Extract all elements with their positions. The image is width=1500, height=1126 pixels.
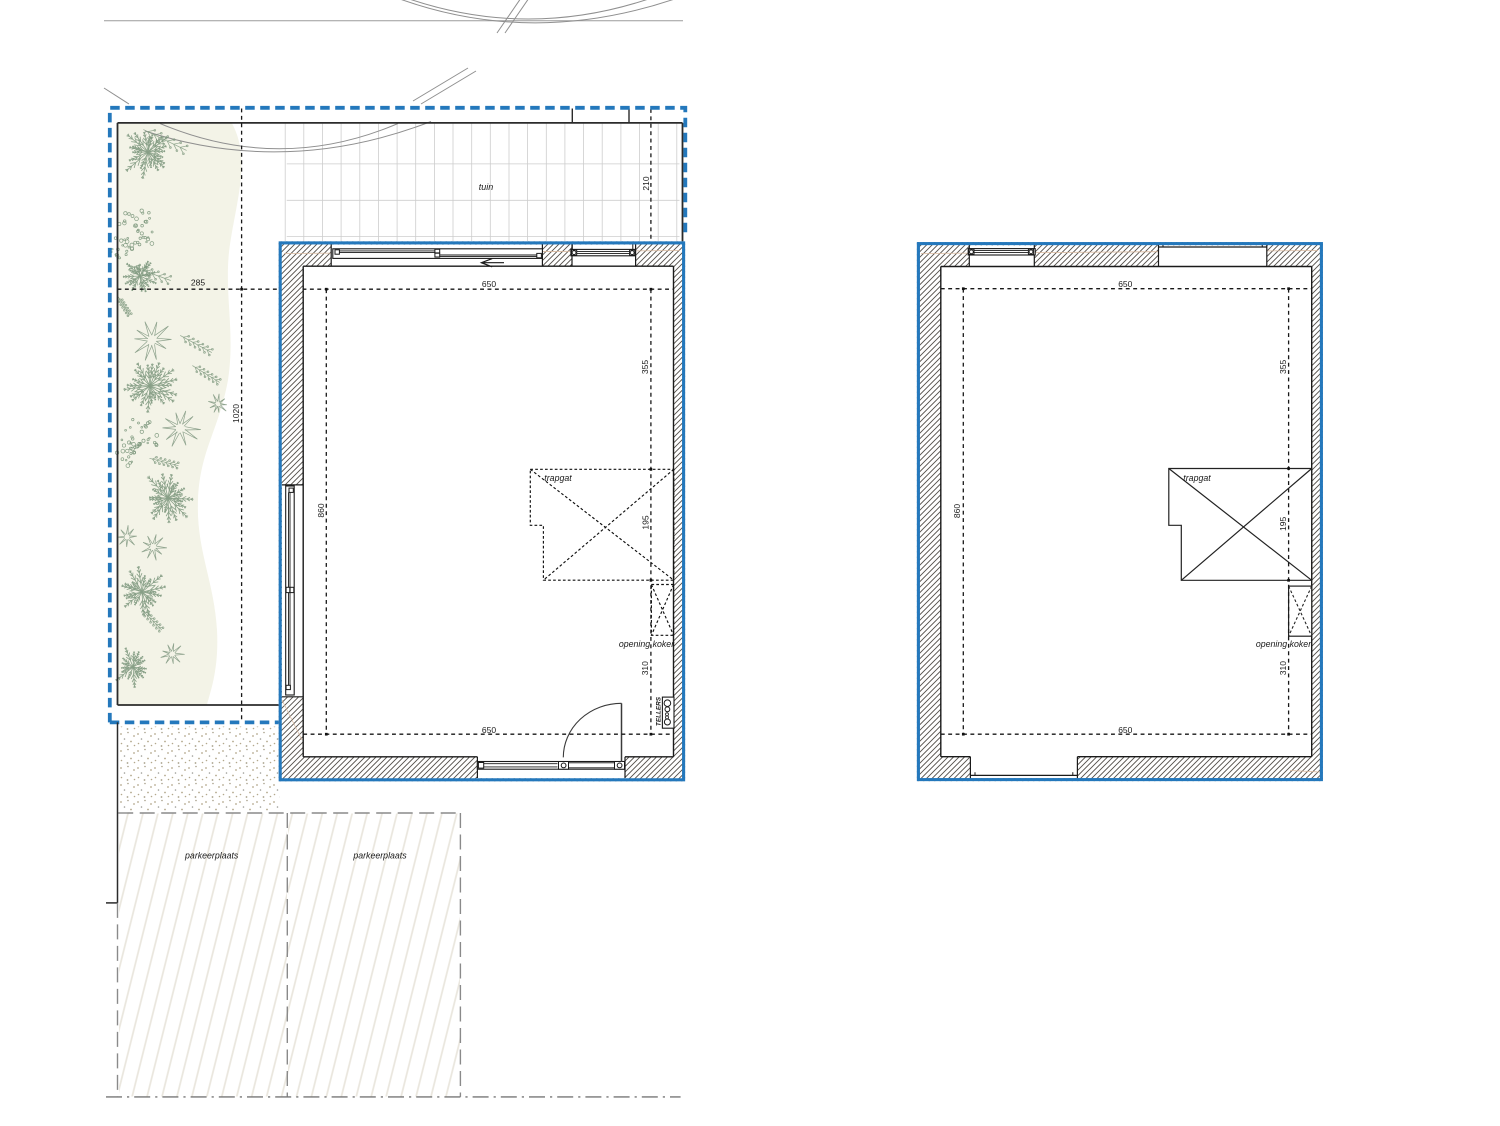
svg-text:210: 210: [641, 176, 651, 190]
svg-text:parkeerplaats: parkeerplaats: [184, 850, 239, 860]
svg-text:trapgat: trapgat: [1183, 473, 1211, 483]
svg-text:650: 650: [482, 279, 496, 289]
svg-text:trapgat: trapgat: [544, 473, 572, 483]
svg-text:parkeerplaats: parkeerplaats: [352, 850, 407, 860]
svg-text:310: 310: [640, 661, 650, 675]
svg-text:355: 355: [640, 360, 650, 374]
svg-text:tuin: tuin: [479, 182, 494, 192]
svg-text:195: 195: [641, 515, 651, 529]
svg-text:opening koker: opening koker: [1256, 639, 1312, 649]
svg-text:195: 195: [1278, 517, 1288, 531]
svg-text:650: 650: [482, 725, 496, 735]
svg-text:TELLERS: TELLERS: [656, 696, 663, 726]
svg-text:1020: 1020: [231, 404, 241, 423]
svg-text:650: 650: [1118, 279, 1132, 289]
svg-text:285: 285: [191, 278, 205, 288]
svg-text:860: 860: [952, 504, 962, 518]
svg-text:opening koker: opening koker: [619, 639, 675, 649]
svg-text:355: 355: [1278, 360, 1288, 374]
svg-text:650: 650: [1118, 725, 1132, 735]
svg-text:860: 860: [316, 503, 326, 517]
svg-text:310: 310: [1278, 661, 1288, 675]
